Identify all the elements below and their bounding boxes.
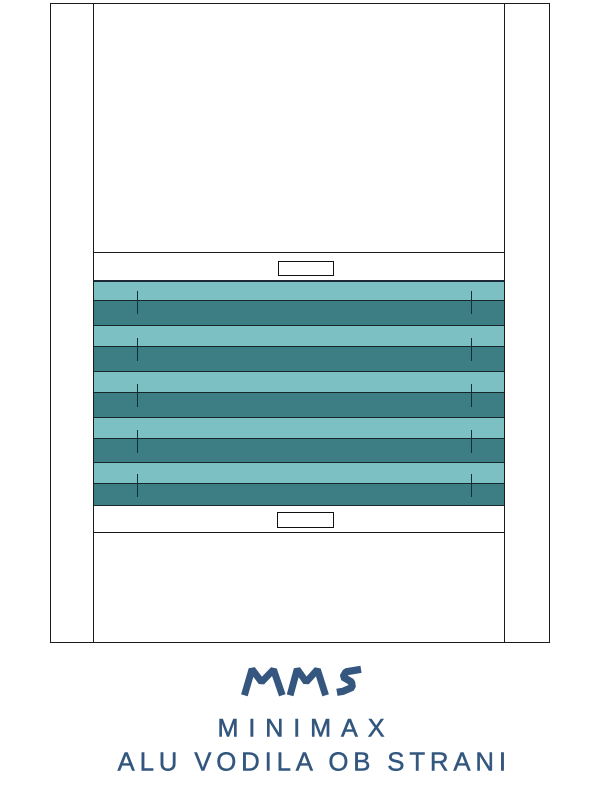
svg-text:ALU VODILA OB STRANI: ALU VODILA OB STRANI xyxy=(118,749,507,777)
svg-text:MINIMAX: MINIMAX xyxy=(218,714,385,742)
